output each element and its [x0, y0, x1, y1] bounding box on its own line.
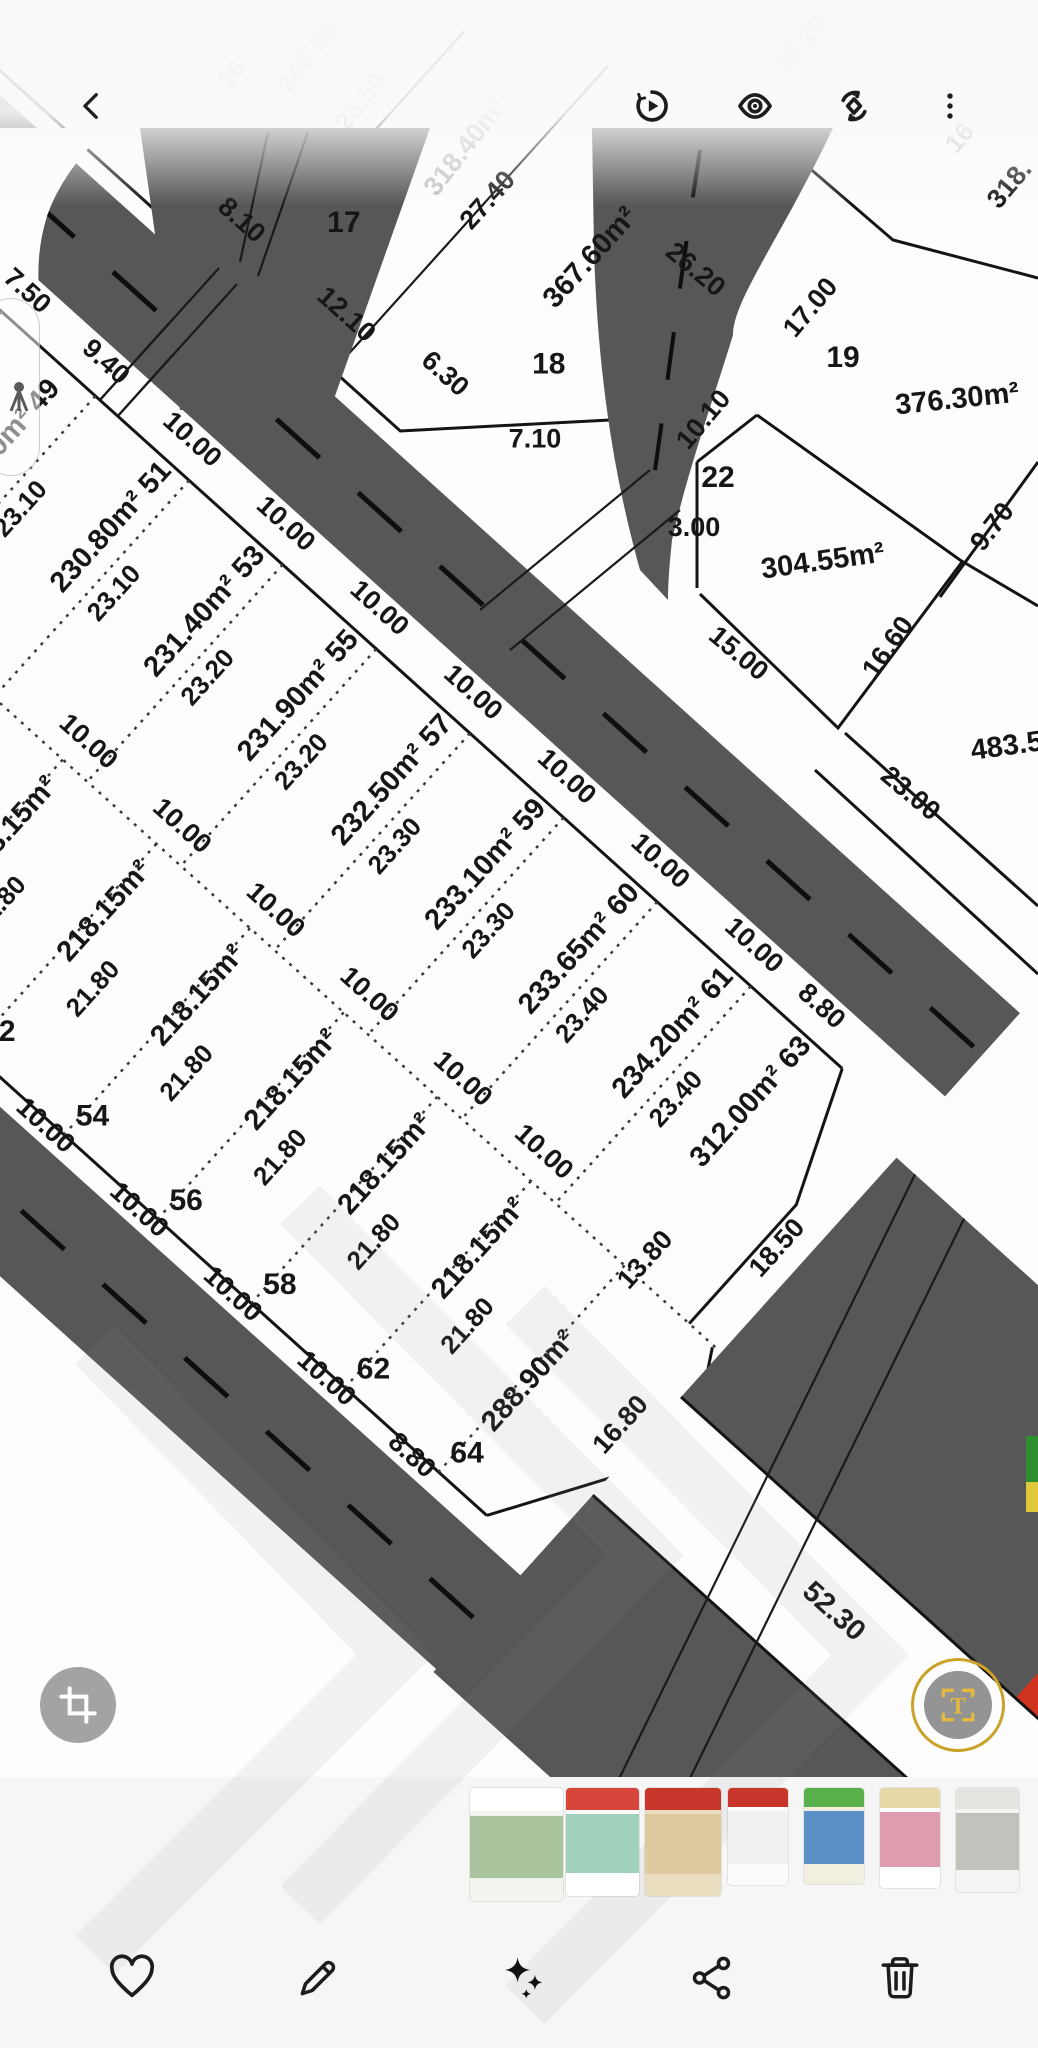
sparkles-icon	[497, 1952, 549, 2004]
back-button[interactable]	[64, 78, 120, 134]
back-icon	[75, 89, 109, 123]
trash-icon	[875, 1953, 925, 2003]
more-menu-button[interactable]	[922, 78, 978, 134]
share-button[interactable]	[682, 1948, 742, 2008]
map-label: 19	[826, 341, 859, 374]
motion-photo-icon	[633, 87, 671, 125]
thumbnail-viet-phat-land-plan[interactable]	[566, 1788, 639, 1896]
thumbnail-zoning-plan-beige[interactable]	[645, 1788, 721, 1896]
eye-icon	[736, 87, 774, 125]
map-label: 18	[532, 348, 565, 381]
map-label: 64	[450, 1437, 484, 1470]
photo-map-image[interactable]: 10.0010.0010.0010.0010.0010.0010.008.809…	[0, 0, 1038, 2048]
heart-icon	[106, 1952, 158, 2004]
edge-color-sliver2	[1026, 1482, 1038, 1512]
map-label: 56	[169, 1184, 202, 1217]
thumbnail-coastal-plan-color[interactable]	[804, 1788, 864, 1884]
crop-icon	[58, 1685, 98, 1725]
watermark-pill	[0, 298, 40, 476]
svg-text:T: T	[950, 1693, 965, 1718]
map-label: 7.10	[509, 423, 562, 453]
edit-button[interactable]	[288, 1948, 348, 2008]
extract-text-fab[interactable]: T	[911, 1658, 1005, 1752]
remaster-button[interactable]	[493, 1948, 553, 2008]
map-label: 58	[263, 1268, 296, 1301]
gallery-screen: 10.0010.0010.0010.0010.0010.0010.008.809…	[0, 0, 1038, 2048]
thumbnail-white-plan-diagonal[interactable]	[728, 1788, 788, 1885]
thumbnail-line-drawing-plan[interactable]	[956, 1788, 1019, 1892]
thumbnail-logo-card-pink[interactable]	[880, 1788, 940, 1888]
map-label: 22	[701, 461, 734, 494]
view-button[interactable]	[727, 78, 783, 134]
map-label: 52	[0, 1015, 16, 1048]
pencil-icon	[293, 1953, 343, 2003]
map-label: 62	[357, 1352, 390, 1385]
favorite-button[interactable]	[102, 1948, 162, 2008]
spin-360-icon	[835, 87, 873, 125]
map-label: 54	[76, 1099, 110, 1132]
more-vertical-icon	[933, 89, 967, 123]
thumbnail-street-map-plan[interactable]	[470, 1788, 563, 1901]
spin-view-button[interactable]	[826, 78, 882, 134]
motion-photo-button[interactable]	[624, 78, 680, 134]
crop-fab[interactable]	[40, 1667, 116, 1743]
share-icon	[687, 1953, 737, 2003]
header-bar	[0, 0, 1038, 205]
map-label: 17	[327, 206, 360, 239]
edge-color-sliver	[1026, 1436, 1038, 1482]
map-label: 3.00	[668, 512, 721, 542]
extract-text-icon: T	[924, 1671, 992, 1739]
surveyor-icon	[0, 369, 39, 429]
delete-button[interactable]	[870, 1948, 930, 2008]
